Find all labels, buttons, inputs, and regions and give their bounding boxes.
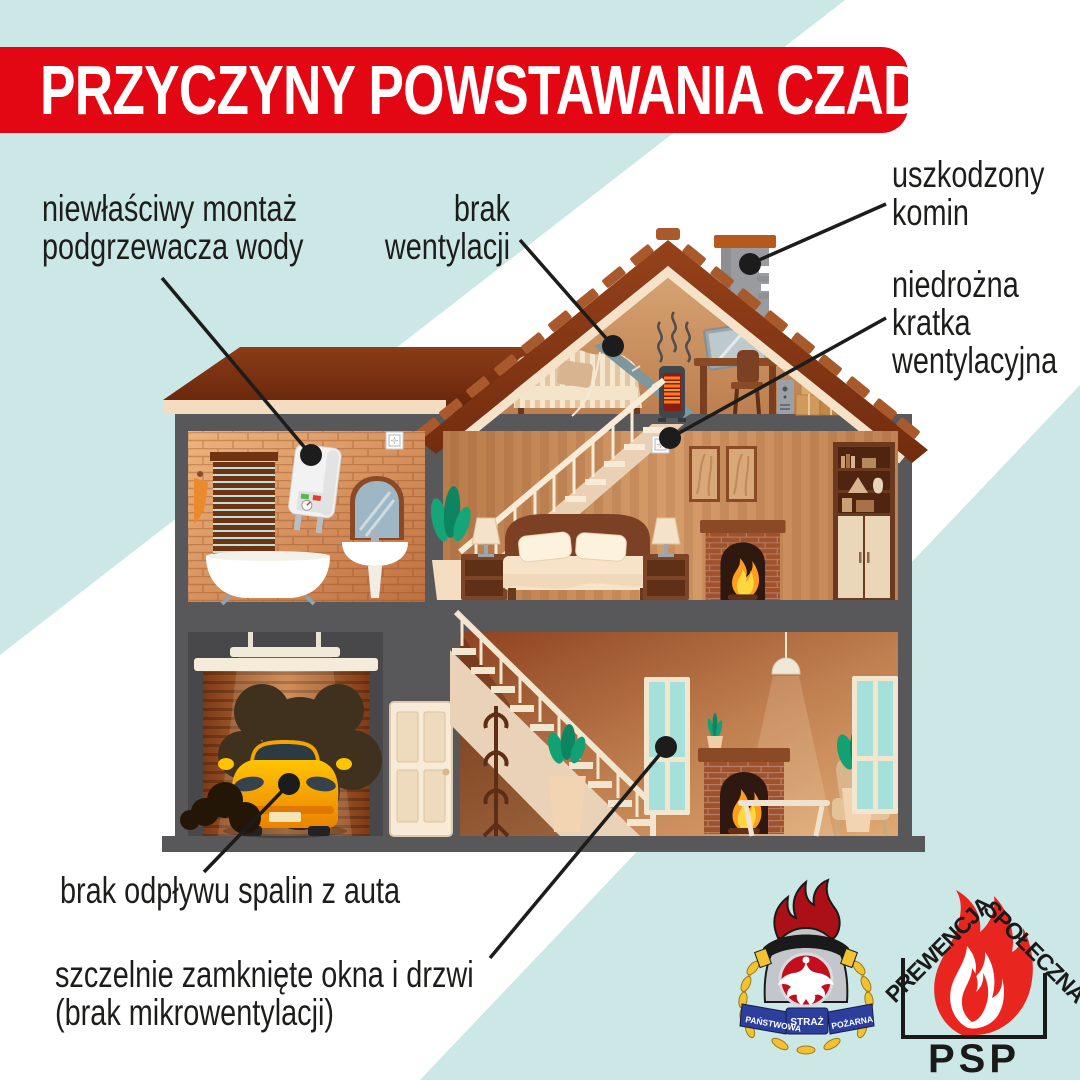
picture-frame-left bbox=[689, 446, 720, 502]
label-line: kratka bbox=[892, 304, 1057, 342]
garage bbox=[180, 632, 383, 838]
nightstand-left bbox=[461, 554, 507, 600]
title-banner: PRZYCZYNY POWSTAWANIA CZADU bbox=[0, 47, 908, 133]
bathroom-vent-grille bbox=[386, 432, 403, 449]
label-water-heater: niewłaściwy montaż podgrzewacza wody bbox=[42, 190, 303, 266]
door-knob bbox=[443, 769, 450, 776]
prevention-text-psp: PSP bbox=[928, 1037, 1020, 1080]
label-line: uszkodzony bbox=[892, 156, 1044, 194]
crest-ribbon-center-text: STRAŻ bbox=[790, 1015, 823, 1028]
living-window-right bbox=[852, 676, 898, 814]
label-damaged-chimney: uszkodzony komin bbox=[892, 156, 1044, 232]
attic-pc-tower bbox=[777, 380, 794, 414]
nightstand-right bbox=[643, 554, 689, 600]
label-line: (brak mikrowentylacji) bbox=[55, 994, 474, 1032]
infographic: PAŃSTWOWA STRAŻ POŻARNA PREWENCJA SPOŁEC… bbox=[0, 0, 1080, 1080]
living-fireplace bbox=[698, 748, 790, 834]
label-car-exhaust: brak odpływu spalin z auta bbox=[60, 872, 400, 910]
bathroom-blinds bbox=[210, 452, 278, 556]
label-line: wentylacji bbox=[332, 228, 510, 266]
interior-door bbox=[390, 702, 452, 836]
label-line: brak odpływu spalin z auta bbox=[60, 872, 400, 910]
label-blocked-vent-grille: niedrożna kratka wentylacyjna bbox=[892, 266, 1057, 380]
label-line: niedrożna bbox=[892, 266, 1057, 304]
label-line: podgrzewacza wody bbox=[42, 228, 303, 266]
label-line: szczelnie zamknięte okna i drzwi bbox=[55, 956, 474, 994]
label-no-ventilation: brak wentylacji bbox=[332, 190, 510, 266]
bedroom-fireplace bbox=[700, 520, 786, 600]
bed bbox=[503, 514, 652, 600]
label-line: komin bbox=[892, 194, 1044, 232]
label-closed-windows: szczelnie zamknięte okna i drzwi (brak m… bbox=[55, 956, 474, 1032]
living-room bbox=[450, 612, 898, 836]
label-line: niewłaściwy montaż bbox=[42, 190, 303, 228]
label-line: wentylacyjna bbox=[892, 342, 1057, 380]
label-line: brak bbox=[332, 190, 510, 228]
picture-frame-right bbox=[726, 446, 757, 502]
wardrobe bbox=[833, 442, 895, 600]
page-title: PRZYCZYNY POWSTAWANIA CZADU bbox=[40, 50, 958, 130]
